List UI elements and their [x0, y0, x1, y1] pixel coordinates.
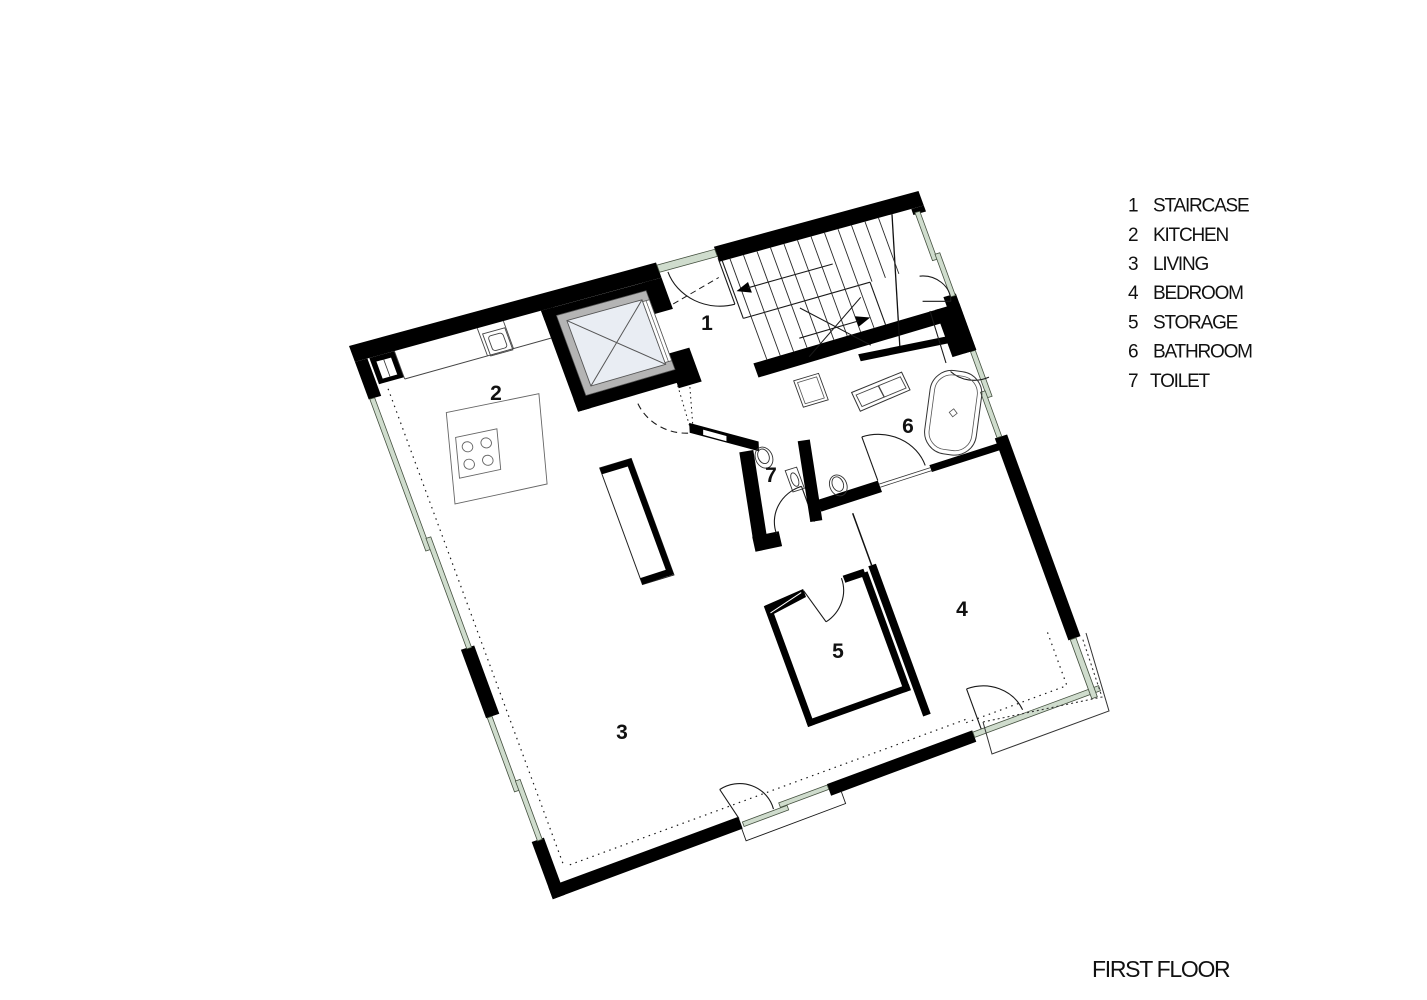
svg-text:BEDROOM: BEDROOM [1153, 283, 1243, 304]
svg-text:TOILET: TOILET [1150, 371, 1211, 392]
svg-text:BATHROOM: BATHROOM [1153, 342, 1252, 363]
svg-text:1: 1 [701, 312, 713, 335]
svg-text:STORAGE: STORAGE [1153, 312, 1238, 333]
svg-text:KITCHEN: KITCHEN [1153, 225, 1228, 246]
svg-text:6: 6 [1128, 342, 1138, 363]
svg-text:5: 5 [1128, 312, 1138, 333]
svg-text:2: 2 [1128, 225, 1138, 246]
svg-text:1: 1 [1128, 196, 1138, 217]
svg-text:7: 7 [765, 464, 777, 487]
svg-text:FIRST FLOOR: FIRST FLOOR [1092, 956, 1230, 982]
svg-text:5: 5 [832, 640, 844, 663]
svg-text:LIVING: LIVING [1153, 254, 1209, 275]
svg-text:3: 3 [1128, 254, 1138, 275]
svg-text:2: 2 [490, 382, 502, 405]
svg-text:4: 4 [956, 598, 968, 621]
svg-text:6: 6 [902, 415, 914, 438]
svg-text:4: 4 [1128, 283, 1139, 304]
svg-text:7: 7 [1128, 371, 1138, 392]
svg-text:STAIRCASE: STAIRCASE [1153, 196, 1249, 217]
svg-text:3: 3 [616, 721, 628, 744]
